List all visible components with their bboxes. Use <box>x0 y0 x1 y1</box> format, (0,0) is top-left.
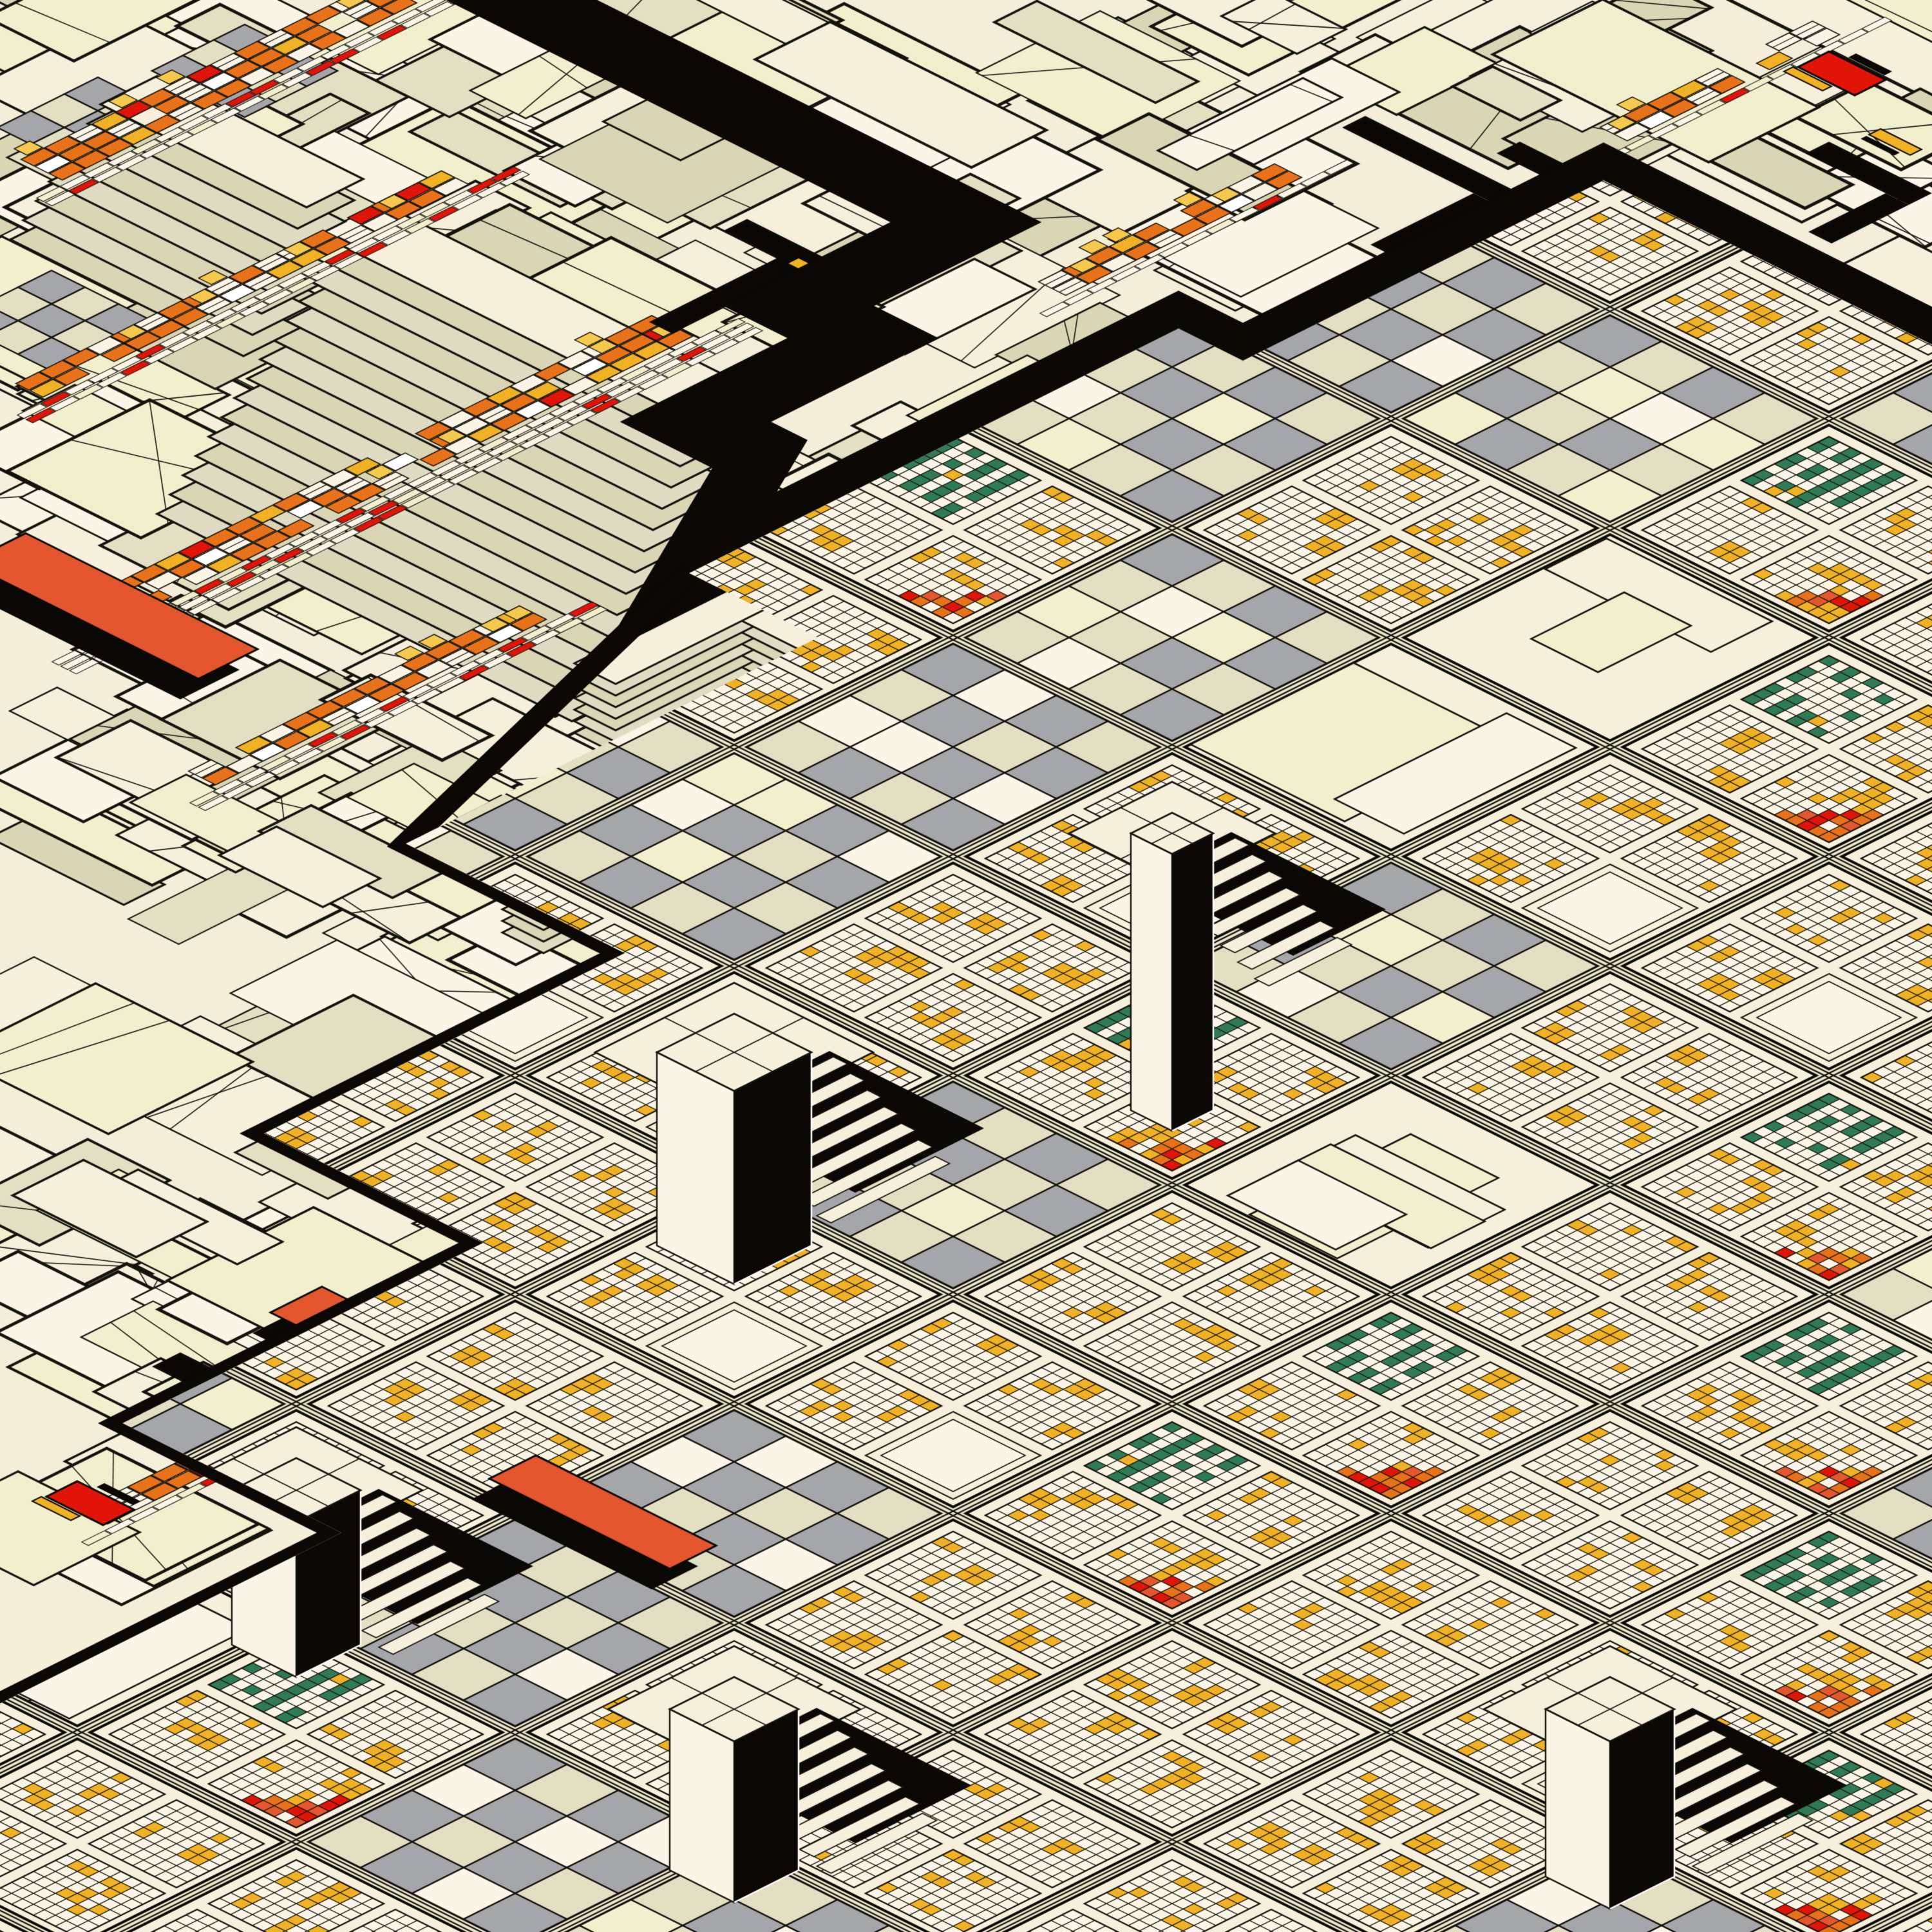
generative-artwork-canvas <box>0 0 1932 1932</box>
artwork-frame <box>0 0 1932 1932</box>
